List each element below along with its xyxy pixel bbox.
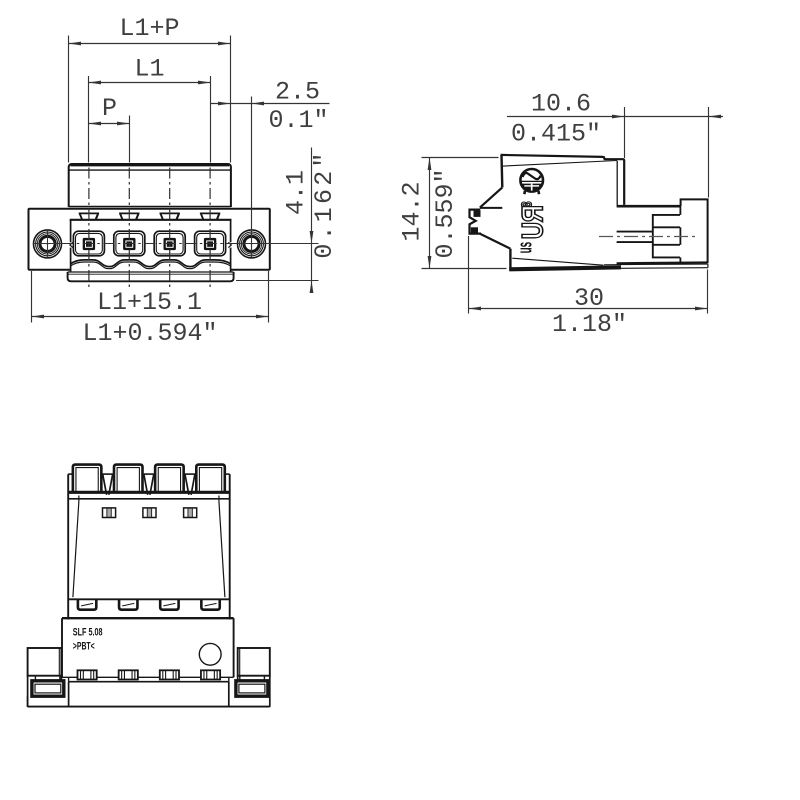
- svg-text:U: U: [517, 222, 550, 239]
- svg-text:1.18": 1.18": [552, 310, 627, 339]
- svg-text:us: us: [515, 242, 537, 254]
- svg-text:30: 30: [574, 284, 604, 313]
- svg-text:2.5: 2.5: [275, 77, 320, 106]
- svg-text:>PBT<: >PBT<: [73, 640, 95, 652]
- svg-text:L1+15.1: L1+15.1: [97, 288, 202, 317]
- svg-text:L1+0.594": L1+0.594": [82, 319, 217, 348]
- svg-text:SLF 5.08: SLF 5.08: [73, 626, 103, 638]
- svg-text:L1: L1: [134, 55, 164, 84]
- svg-text:0.162": 0.162": [310, 149, 339, 258]
- svg-text:14.2: 14.2: [398, 181, 427, 241]
- svg-text:0.559": 0.559": [431, 168, 460, 258]
- svg-text:P: P: [102, 94, 117, 123]
- svg-text:L1+P: L1+P: [119, 14, 179, 43]
- svg-text:0.415": 0.415": [511, 120, 601, 149]
- svg-text:10.6: 10.6: [531, 90, 591, 119]
- svg-text:0.1": 0.1": [268, 106, 328, 135]
- svg-text:R: R: [517, 205, 550, 223]
- svg-text:4.1: 4.1: [282, 170, 311, 215]
